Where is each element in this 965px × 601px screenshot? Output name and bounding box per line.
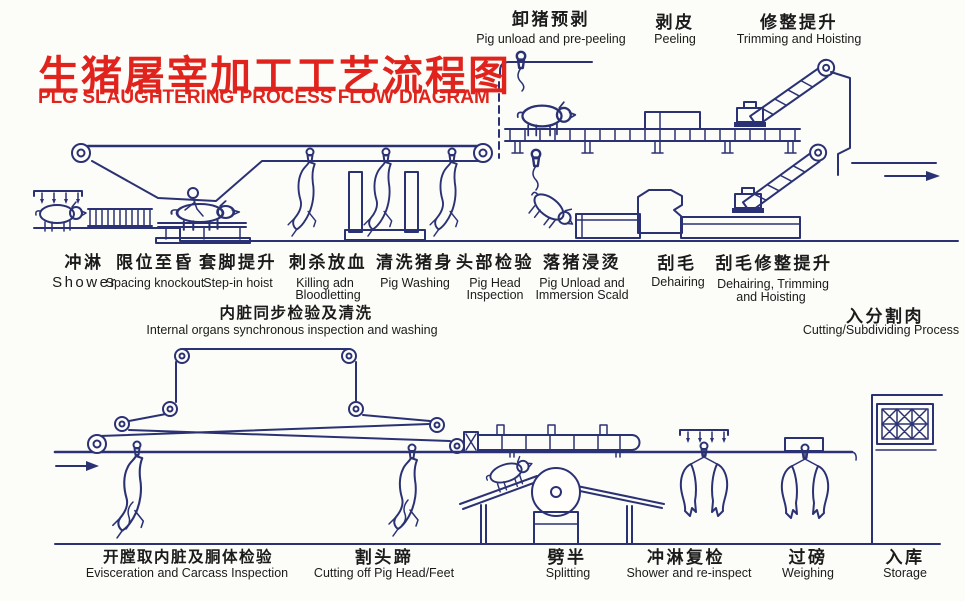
label-unload-prepeel-cn: 卸猪预剥 — [512, 11, 590, 29]
label-cut-head-feet-cn: 割头蹄 — [355, 549, 414, 567]
flow-arrow-right — [885, 171, 940, 181]
scalding-tank — [522, 185, 640, 239]
diagram-title-en: PLG SLAUGHTERING PROCESS FLOW DIAGRAM — [38, 87, 490, 109]
label-shower-cn: 冲淋 — [65, 254, 104, 272]
label-splitting-en: Splitting — [546, 567, 590, 580]
label-knockout-en: Spacing knockout — [106, 277, 205, 290]
hanging-pig-inspection — [430, 162, 458, 236]
shower-station — [34, 191, 86, 231]
drop-hook — [532, 150, 540, 166]
pig-on-conveyor — [518, 102, 576, 135]
label-reinspect-en: Shower and re-inspect — [626, 567, 751, 580]
label-stepin-hoist-en: Step-in hoist — [203, 277, 272, 290]
label-knockout-cn: 限位至昏 — [116, 254, 194, 272]
split-carcass-pair — [782, 452, 828, 518]
label-dehair-trim-hoist-cn: 刮毛修整提升 — [716, 255, 833, 273]
label-killing-en2: Bloodletting — [295, 289, 360, 302]
saw-blade — [532, 468, 580, 516]
dehairing-machine — [638, 190, 682, 233]
label-scald-en2: Immersion Scald — [535, 289, 628, 302]
label-unload-prepeel-en: Pig unload and pre-peeling — [476, 33, 625, 46]
label-evisceration-cn: 开膛取内脏及胴体检验 — [103, 550, 273, 566]
split-carcass-pair — [681, 450, 727, 516]
label-weighing-en: Weighing — [782, 567, 834, 580]
label-dehair-trim-hoist-en2: and Hoisting — [736, 291, 806, 304]
prepeel-conveyor — [505, 102, 800, 153]
pig-under-shower — [36, 202, 86, 231]
rail-hook — [409, 445, 416, 459]
trimming-hoist-upper — [734, 57, 837, 127]
storage-room — [872, 395, 942, 543]
shower-reinspect-station — [680, 430, 728, 516]
ground-top — [34, 228, 958, 241]
label-killing-cn: 刺杀放血 — [289, 254, 367, 272]
hoist-worker — [185, 188, 203, 216]
label-trimming-hoisting-en: Trimming and Hoisting — [737, 33, 862, 46]
stun-pen-fence — [88, 209, 152, 226]
rail-hook — [307, 149, 314, 163]
label-organ-inspection-en: Internal organs synchronous inspection a… — [146, 324, 437, 337]
label-cut-head-feet-en: Cutting off Pig Head/Feet — [314, 567, 454, 580]
weighing-station — [782, 438, 828, 518]
rail-hook — [449, 149, 456, 163]
pig-on-bench — [171, 201, 239, 230]
rail-hook — [383, 149, 390, 163]
label-peeling-en: Peeling — [654, 33, 696, 46]
flow-arrow-start — [56, 461, 99, 471]
head-feet-cutting-carcass — [389, 458, 418, 536]
process-flow-diagram: 生猪屠宰加工工艺流程图 PLG SLAUGHTERING PROCESS FLO… — [0, 0, 965, 601]
label-scald-cn: 落猪浸烫 — [543, 254, 621, 272]
rail-pulley-right — [474, 144, 492, 162]
pig-on-splitting-table — [483, 454, 537, 495]
hanging-pig-washing — [288, 162, 316, 236]
label-organ-inspection-cn: 内脏同步检验及清洗 — [219, 306, 372, 322]
label-weighing-cn: 过磅 — [789, 549, 828, 567]
peeling-machine — [645, 112, 700, 129]
transfer-hook — [517, 52, 525, 68]
bloodletting-frame — [345, 172, 425, 240]
pig-dropping-into-scald — [522, 185, 579, 239]
label-evisceration-en: Evisceration and Carcass Inspection — [86, 567, 288, 580]
label-washing-cn: 清洗猪身 — [376, 254, 454, 272]
label-storage-en: Storage — [883, 567, 927, 580]
rail-pulley-left — [72, 144, 90, 162]
label-cutting-process-en: Cutting/Subdividing Process — [803, 324, 959, 337]
hoist-platform — [681, 217, 800, 238]
splitting-saw-station — [460, 454, 664, 544]
bleeding-bench — [156, 201, 250, 243]
label-splitting-cn: 劈半 — [548, 549, 587, 567]
rail-pulley-bottom-left — [88, 435, 106, 453]
label-reinspect-cn: 冲淋复检 — [647, 549, 725, 567]
organ-inspection-loop — [115, 349, 464, 453]
trimming-hoist-lower — [732, 141, 829, 213]
overhead-rail-top — [72, 144, 492, 201]
label-head-inspection-cn: 头部检验 — [456, 254, 534, 272]
hanging-pig-bleeding — [364, 162, 392, 236]
label-storage-cn: 入库 — [886, 549, 925, 567]
label-trimming-hoisting-cn: 修整提升 — [760, 14, 838, 32]
label-washing-en: Pig Washing — [380, 277, 450, 290]
discharge-chute — [831, 72, 850, 175]
label-head-inspection-en2: Inspection — [467, 289, 524, 302]
label-dehairing-cn: 刮毛 — [658, 255, 697, 273]
label-dehairing-en: Dehairing — [651, 276, 705, 289]
label-peeling-cn: 剥皮 — [656, 14, 695, 32]
label-stepin-hoist-cn: 套脚提升 — [199, 254, 277, 272]
eviscerated-carcass — [113, 456, 143, 538]
